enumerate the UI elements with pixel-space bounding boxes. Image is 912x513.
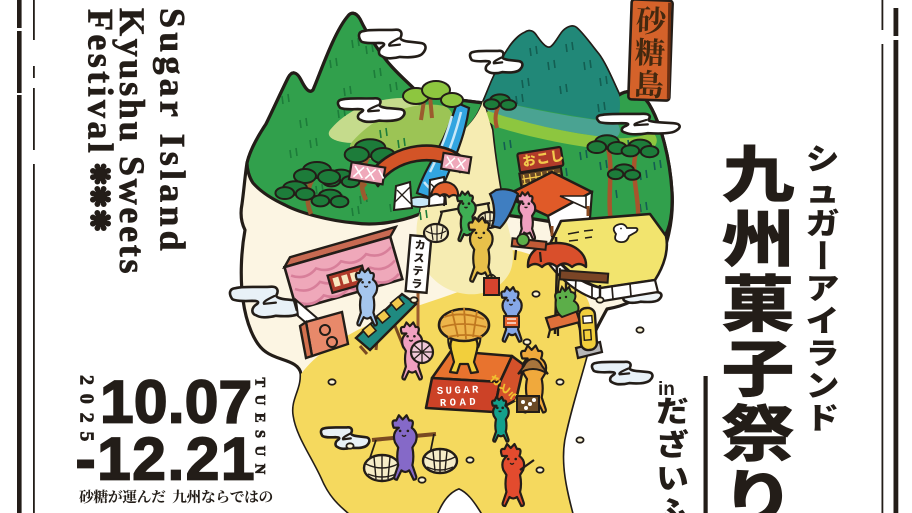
svg-text:-12.21: -12.21 (76, 425, 257, 493)
svg-text:Sugar Island: Sugar Island (153, 8, 193, 255)
svg-text:in: in (658, 379, 675, 400)
svg-text:SUN: SUN (252, 430, 268, 482)
svg-text:TUE: TUE (252, 378, 268, 431)
svg-text:Festival: Festival (81, 9, 121, 156)
svg-text:ROAD: ROAD (440, 397, 480, 410)
